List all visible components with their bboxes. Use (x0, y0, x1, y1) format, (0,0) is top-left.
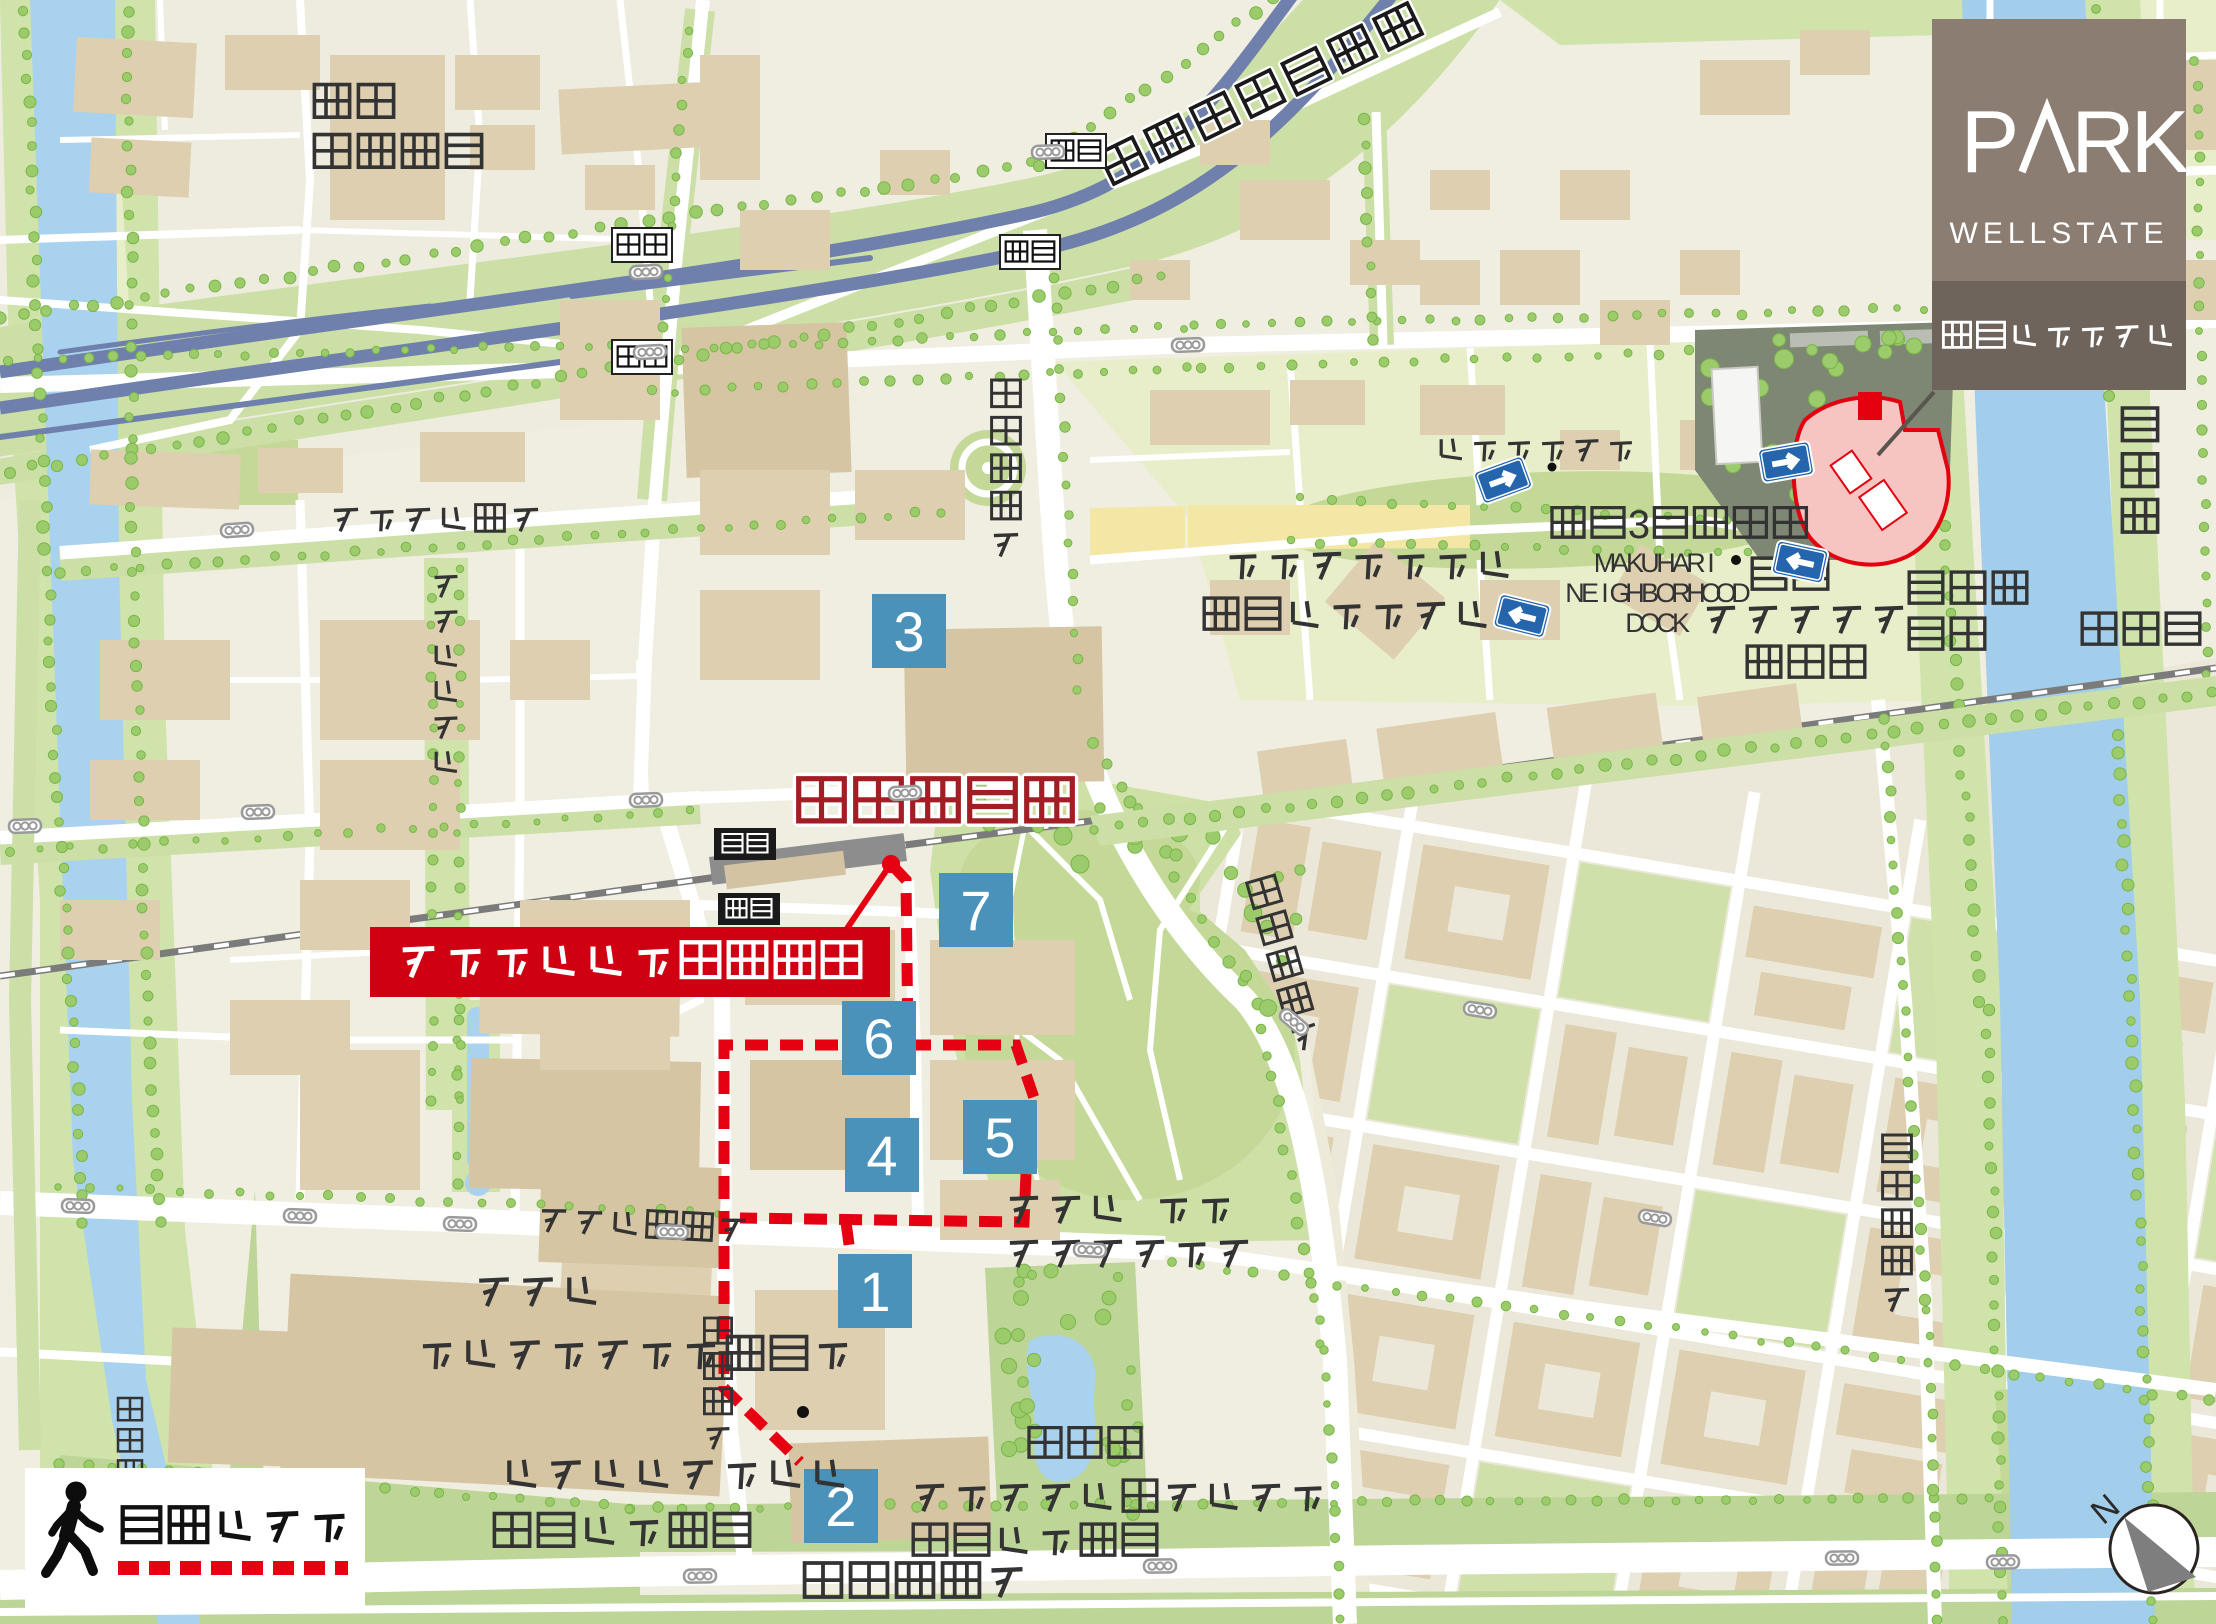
svg-text:R: R (1686, 548, 1706, 578)
svg-text:5: 5 (984, 1106, 1015, 1169)
svg-text:E: E (1581, 578, 1599, 608)
svg-text:I: I (1601, 578, 1609, 608)
svg-text:6: 6 (863, 1007, 894, 1070)
svg-text:I: I (1707, 548, 1715, 578)
svg-text:7: 7 (960, 879, 991, 942)
svg-text:1: 1 (859, 1260, 890, 1323)
svg-text:WELLSTATE: WELLSTATE (1950, 217, 2169, 250)
svg-text:K: K (2131, 92, 2190, 191)
svg-text:D: D (1731, 578, 1751, 608)
svg-text:K: K (1672, 608, 1690, 638)
svg-text:3: 3 (1628, 503, 1650, 547)
svg-text:R: R (2071, 92, 2135, 191)
svg-text:3: 3 (893, 600, 924, 663)
svg-text:4: 4 (866, 1124, 897, 1187)
svg-text:P: P (1961, 92, 2020, 191)
